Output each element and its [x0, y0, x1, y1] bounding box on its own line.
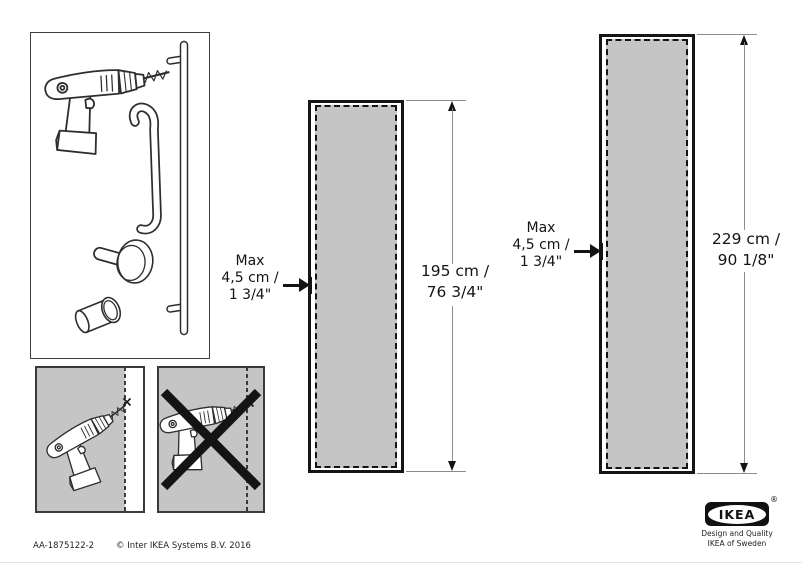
bar-handle-icon	[170, 45, 184, 331]
dimension-line	[452, 306, 453, 462]
door-handle-icon	[134, 107, 158, 229]
instruction-panel-prohibited	[157, 366, 265, 513]
door-panel-229	[599, 34, 695, 474]
extension-line	[406, 471, 466, 472]
ikea-logo: IKEA	[705, 502, 769, 526]
dimension-arrow-down	[740, 463, 748, 473]
cylinder-knob-icon	[72, 295, 123, 336]
max-depth-arrow	[283, 284, 300, 287]
logo-tagline: Design and Quality IKEA of Sweden	[675, 529, 799, 548]
footer-doc-id: AA-1875122-2	[33, 541, 94, 551]
max-depth-arrow-head	[590, 244, 601, 258]
dimension-line	[744, 272, 745, 463]
registered-trademark-icon: ®	[770, 495, 778, 504]
round-knob-icon	[98, 231, 164, 293]
max-depth-label: Max 4,5 cm / 1 3/4"	[503, 220, 579, 271]
max-depth-arrow	[574, 250, 591, 253]
dimension-line	[744, 42, 745, 230]
dimension-line	[452, 108, 453, 264]
extension-line	[697, 473, 757, 474]
dimension-arrow-down	[448, 461, 456, 471]
parts-box	[30, 32, 210, 359]
bottom-divider	[0, 562, 802, 563]
extension-line	[406, 100, 466, 101]
door-panel-195	[308, 100, 404, 473]
max-depth-arrow-head	[299, 278, 310, 292]
height-label: 229 cm / 90 1/8"	[703, 229, 789, 271]
ikea-logo-wordmark: IKEA	[705, 502, 769, 526]
max-depth-label: Max 4,5 cm / 1 3/4"	[212, 253, 288, 304]
extension-line	[697, 34, 757, 35]
instruction-sheet: Max 4,5 cm / 1 3/4" 195 cm / 76 3/4" Max…	[0, 0, 802, 568]
door-face	[315, 105, 397, 468]
instruction-panel-allowed	[35, 366, 145, 513]
door-face	[606, 39, 688, 469]
footer-copyright: © Inter IKEA Systems B.V. 2016	[116, 541, 251, 551]
height-label: 195 cm / 76 3/4"	[412, 261, 498, 303]
